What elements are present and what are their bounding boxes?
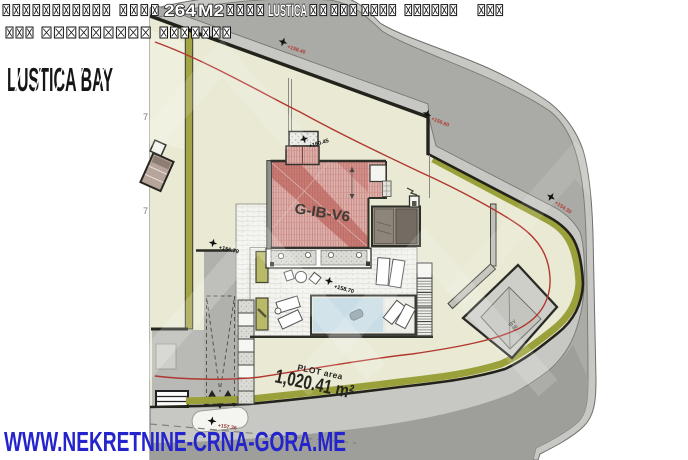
svg-text:M2: M2	[198, 2, 224, 20]
svg-text:LUSTICA: LUSTICA	[268, 2, 307, 20]
svg-text:WWW.NEKRETNINE-CRNA-GORA.ME: WWW.NEKRETNINE-CRNA-GORA.ME	[4, 426, 346, 457]
svg-text:264: 264	[164, 2, 197, 20]
svg-text:7: 7	[143, 206, 148, 216]
svg-text:7: 7	[143, 112, 148, 122]
